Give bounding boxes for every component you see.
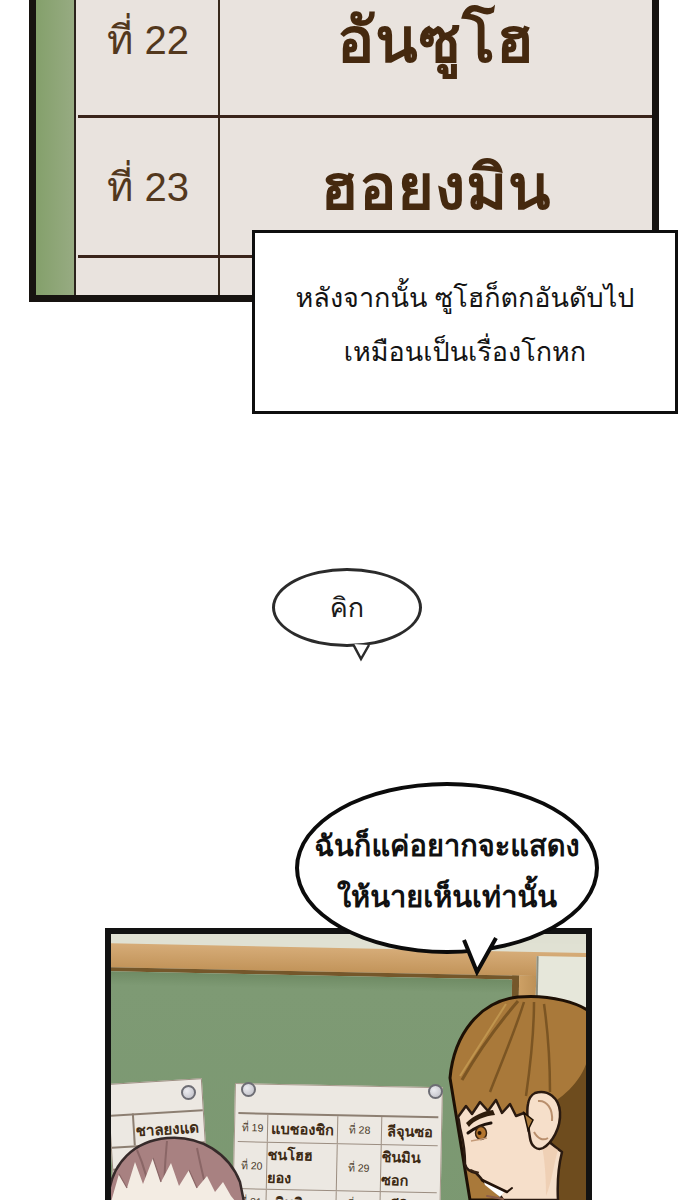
ranking-mini-table: ที่ 19 แบชองชิก ที่ 28 ลีจุนซอ ที่ 20 ชน… — [236, 1112, 438, 1200]
name-cell: ชนโฮฮยอง — [267, 1143, 338, 1190]
table-row: ที่ 20 ชนโฮฮยอง ที่ 29 ชินมินซอก — [237, 1142, 438, 1193]
push-pin — [181, 1085, 196, 1100]
rank-cell — [78, 258, 220, 295]
rank-cell: ที่ 28 — [338, 1116, 383, 1144]
name-cell: ลีจินอู — [380, 1192, 436, 1200]
speech-line: ให้นายเห็นเท่านั้น — [337, 876, 557, 912]
speech-bubble: ฉันก็แค่อยากจะแสดง ให้นายเห็นเท่านั้น — [295, 782, 599, 954]
sfx-bubble-tail — [352, 644, 372, 662]
speech-bubble-tail — [460, 934, 500, 976]
table-row: ที่ 22 อันซูโฮ — [78, 0, 652, 115]
table-green-margin — [36, 0, 76, 295]
speech-line: ฉันก็แค่อยากจะแสดง — [314, 825, 579, 861]
name-cell: ลีจุนซอ — [382, 1117, 439, 1145]
push-pin — [241, 1082, 256, 1097]
sfx-speech-bubble: คิก — [272, 568, 422, 647]
narration-line: เหมือนเป็นเรื่องโกหก — [344, 333, 586, 366]
comic-page: { "ranking_panel": { "rows": [ {"rank": … — [0, 0, 700, 1200]
narration-line: หลังจากนั้น ซูโฮก็ตกอันดับไป — [296, 279, 635, 312]
name-cell: อันซูโฮ — [220, 0, 652, 115]
sfx-text: คิก — [330, 586, 364, 629]
rank-cell: ที่ 23 — [78, 118, 220, 255]
pinned-ranking-paper: ที่ 19 แบชองชิก ที่ 28 ลีจุนซอ ที่ 20 ชน… — [232, 1083, 443, 1200]
rank-cell: ที่ 29 — [337, 1144, 382, 1191]
name-cell: ชินมินซอก — [381, 1145, 438, 1192]
rank-cell: ที่ 22 — [78, 0, 220, 115]
name-cell: แบชองชิก — [268, 1115, 339, 1143]
girl-character — [105, 1130, 253, 1200]
name-cell: มินกิลจุง — [266, 1190, 336, 1200]
boy-character — [440, 992, 590, 1200]
rank-cell: ที่ 30 — [336, 1191, 380, 1200]
classroom-panel: ชาลยงแด ที่ 19 แบชองชิก ที่ 28 ลีจุนซอ ท… — [105, 928, 592, 1200]
table-row: ที่ 19 แบชองชิก ที่ 28 ลีจุนซอ — [238, 1114, 439, 1146]
narration-box: หลังจากนั้น ซูโฮก็ตกอันดับไป เหมือนเป็นเ… — [252, 230, 678, 414]
